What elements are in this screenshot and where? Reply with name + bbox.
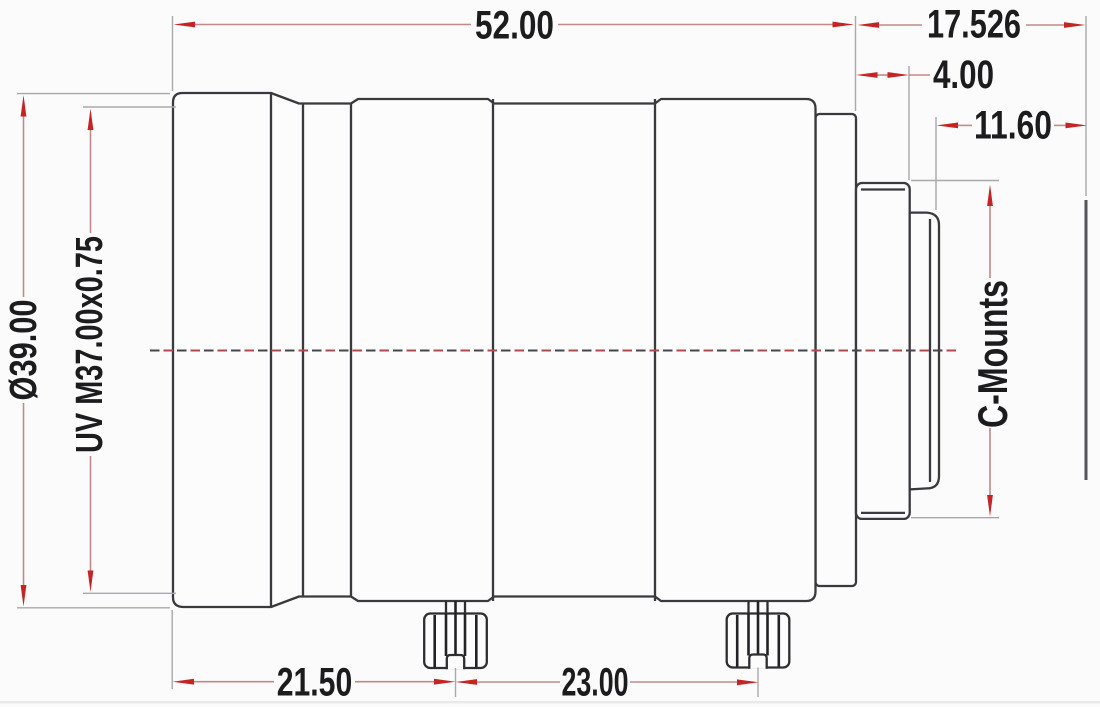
svg-text:21.50: 21.50 [277,660,353,704]
svg-text:Ø39.00: Ø39.00 [3,300,45,401]
svg-text:C-Mounts: C-Mounts [969,280,1016,428]
svg-text:UV M37.00x0.75: UV M37.00x0.75 [69,236,111,453]
svg-text:52.00: 52.00 [475,3,554,47]
svg-text:17.526: 17.526 [927,3,1021,47]
svg-text:23.00: 23.00 [562,660,629,704]
svg-text:4.00: 4.00 [933,53,994,97]
svg-text:11.60: 11.60 [974,104,1052,148]
